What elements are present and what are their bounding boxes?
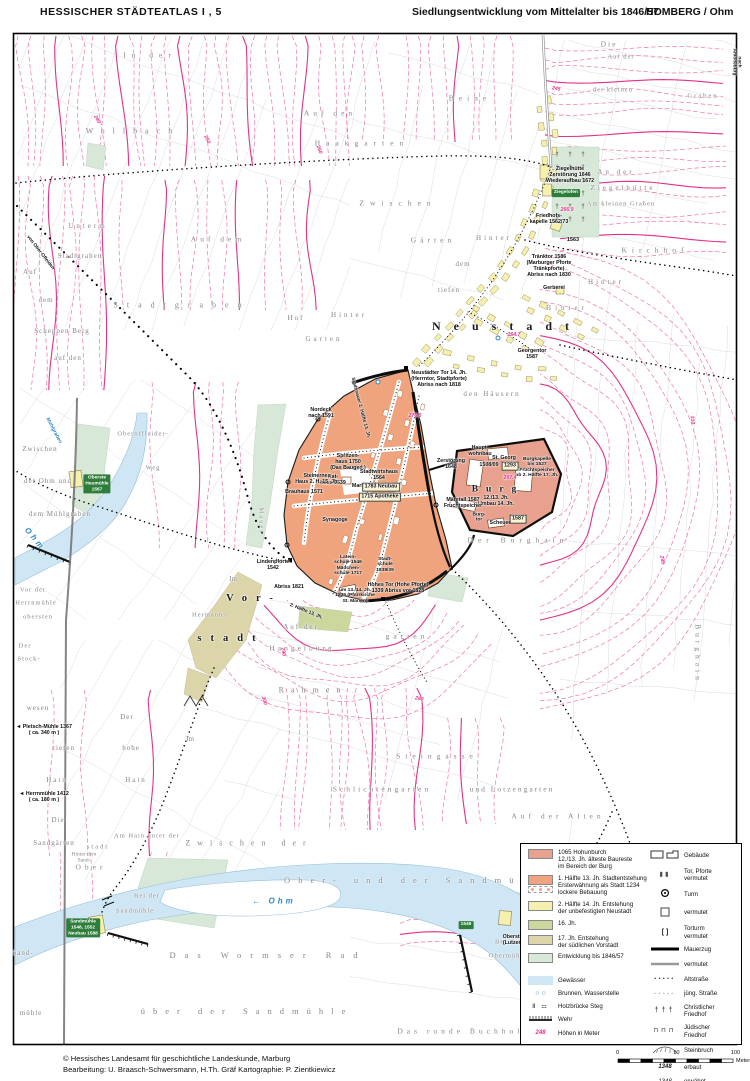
map-label: Das Wormser Rad [170,951,367,961]
map-label: Zerstörung 1648 [437,459,465,471]
map-label: Georgentor 1587 [518,349,547,361]
map-label: 280 [414,696,424,703]
map-label: Sand- [12,949,33,957]
map-label: Die [51,816,64,824]
map-label: Mühlgraben [44,417,62,445]
map-label: Friedhofs- kapelle 1562/73 [530,214,569,226]
map-label: dem [455,260,470,268]
map-label: Auf der Alten [511,813,604,822]
map-label: 1587 [510,515,527,524]
legend-area-item: 2. Hälfte 14. Jh. Entstehung der unbefes… [528,901,649,915]
legend-symbol-item: Mauerzug [649,946,738,954]
map-label: Ohm [23,526,48,553]
legend-symbol-item: vermutet [649,961,738,969]
map-label: Stadtgraben [113,300,250,309]
map-label: hohe [122,744,140,752]
map-label: Gärten [411,237,455,246]
map-label: 295 [657,555,664,565]
map-label: St. Georg [492,456,516,462]
legend-symbol-item: vermutet [649,907,738,919]
map-label: den Häusern [463,390,520,398]
map-label: 245 [551,86,561,93]
map-label: Latein- schule 1546 Mädchen- schule 1717 [334,555,362,577]
map-label: obersten [23,613,53,620]
map-label: 290 [278,647,285,657]
map-label: Oberste Heumühle 1567 [83,474,110,493]
legend-symbol-item: 1348erbaut [649,1063,738,1071]
map-label: dem [38,296,53,304]
legend-box: 1065 Hohunburch 12./13. Jh. älteste Baur… [520,843,742,1045]
legend-symbol-item: ▮▮Tor, Pforte vermutet [649,868,738,882]
map-label: Markt [352,484,366,490]
copyright-line: © Hessisches Landesamt für geschichtlich… [63,1053,336,1064]
map-label: Im [186,735,194,743]
footer: © Hessisches Landesamt für geschichtlich… [63,1053,336,1076]
map-label: Die [601,41,618,50]
map-label: Hinter [331,311,367,319]
map-label: wesen [27,704,50,712]
map-label: Hinter dem Sand- [72,852,97,865]
map-label: Burg [472,485,525,496]
map-label: dem Mühlgraben [29,510,91,518]
map-label: 12./13. Jh. Umbau 14. Jh. [478,496,514,508]
map-label: 2. Hälfte 13. Jh. [289,603,323,621]
legend-area-item: 1. Hälfte 13. Jh. Stadtentstehung Erster… [528,875,649,897]
map-label: Am Hain unter der [114,832,180,839]
legend-symbols-column: Gebäude▮▮Tor, Pforte vermutetTurmvermute… [649,849,738,1042]
map-label: 264.7 [508,333,521,339]
map-label: Hohes Tor (Hohe Pforte) 1339 Abriss vor … [368,583,429,595]
map-label: ← Ohm [252,896,295,905]
map-label: 267.4 [504,476,517,482]
map-label: Steinernes Haus 2. H. 15. Jh. [295,474,339,486]
map-label: Stadtwirtshaus 1564 [360,470,398,482]
map-label: 240 [91,115,100,125]
map-label: stadt [197,633,264,645]
map-label: der Ohm und [24,477,72,485]
map-label: Scheuer [490,521,511,527]
legend-symbol-item: Steinbruch [649,1045,738,1057]
map-label: Ziegelhütte [591,184,656,192]
legend-symbol-item: Turm [649,888,738,900]
map-label: Garten [305,335,342,343]
scale-unit: Meter [736,1058,750,1064]
credits-line: Bearbeitung: U. Braasch-Schwersmann, H.T… [63,1064,336,1075]
map-label: Graben [687,92,718,99]
map-label: Hinter [476,234,512,242]
map-label: Kirchhof [621,247,688,256]
map-label: Nordeck nach 1591 [308,408,334,420]
map-label: Weg [146,464,161,471]
map-label: 250 [201,135,210,145]
map-label: Scheppen Berg [34,327,89,335]
map-label: Stadtgraben [58,252,102,260]
map-label: Burgkapelle bis 1527 Fruchtspeicher ab 2… [516,457,559,479]
map-label: Bei der [134,892,160,899]
map-label: Der [120,713,134,721]
map-label: Auf den [304,110,356,119]
map-label: Rat- haus 1539 [320,475,346,487]
map-label: 1293 [502,462,519,471]
map-label: Ober [76,864,107,873]
map-label: Zwischen [22,445,57,453]
map-label: Ziegelofen [552,189,580,197]
map-label: auf den [54,354,82,362]
map-label: Ziegelhütte Zerstörung 1646 Wiederaufbau… [546,167,594,185]
map-label: 1715 Apotheke [359,493,401,502]
map-label: Stadt- schule 1838/39 [376,557,394,573]
map-label: Das runde Buchholz [397,1028,530,1037]
map-label: Sandmühle 1548, 1552 Neubau 1588 [66,918,100,937]
map-label: Haupt- wohnbau [468,446,491,458]
map-label: Wollbach [86,126,180,135]
map-label: Oberoffleider- [117,430,168,437]
map-label: 276.5 [409,414,422,420]
map-label: Neustädter Tor 14. Jh. (Herrntor, Stadtp… [411,371,467,389]
map-label: Haakgarten [315,140,410,149]
legend-symbol-item: ⊓⊓⊓Jüdischer Friedhof [649,1024,738,1038]
map-label: Vor- [226,593,282,605]
map-label: garten [386,633,429,642]
map-label: 1549 [459,921,474,929]
map-label: über der Sandmühle [141,1007,353,1017]
map-label: Tränktor 1586 (Marburger Pforte Tränkpfo… [527,255,572,279]
map-label: Marstall 1587 Fruchtspeicher [444,498,482,510]
map-label: Rahmen [279,685,348,694]
map-label: Auf der [607,53,634,60]
atlas-sheet: HESSISCHER STÄDTEATLAS I , 5 Siedlungsen… [0,0,750,1081]
scale-label: 0 [616,1050,619,1056]
map-label: Burghain [693,624,702,684]
map-label: Unterm [68,222,107,230]
legend-water-item: Wehr [528,1015,649,1025]
map-label: Zwischen [359,200,436,209]
legend-symbol-item: •••••Altstraße [649,975,738,983]
legend-symbol-item: [ ]Torturm vermutet [649,925,738,939]
legend-symbol-item: †††Christlicher Friedhof [649,1004,738,1018]
map-label: 260 [314,145,323,155]
map-label: 1563 [567,237,579,243]
map-label: ◄ Pletsch-Mühle 1367 ( ca. 340 m ) [16,725,72,737]
legend-water-item: Ⅱ ⚏Holzbrücke Steg [528,1003,649,1011]
map-label: Hof [288,314,305,322]
map-label: Stadtmauer 2. Hälfte 13. Jh. [349,377,370,439]
map-label: von Ober-Ofleiden [25,235,55,271]
map-label: An der [597,168,634,176]
map-label: Im [229,575,237,583]
map-label: 1783 Neubau [362,483,400,492]
map-label: Stock- [18,655,41,662]
map-label: Mauer [257,508,264,535]
map-label: der kleinen [593,86,633,93]
map-label: um 13./14. Jh. 1239 (Pfarrkirche St. Mar… [335,588,375,604]
map-label: Herrnmühle [15,599,56,606]
legend-water-item: Gewässer [528,976,649,985]
legend-symbol-item: ◦◦◦◦◦jüng. Straße [649,990,738,998]
map-label: Hinter [546,304,588,312]
map-label: Beine [449,95,492,104]
map-label: Sandgärten [33,839,75,847]
map-label: 300 [259,696,267,706]
map-label: Hermanns- [192,611,230,618]
map-label: Auf [23,268,37,276]
legend-area-item: 17. Jh. Entstehung der südlichen Vorstad… [528,935,649,949]
map-label: mühle [20,1009,43,1017]
map-label: Gerberei [543,286,565,292]
map-label: Hain [46,776,68,784]
map-label: Burg- tor [472,513,485,524]
map-label: Auf dem [191,236,245,245]
map-label: ◄ Herrnmühle 1412 ( ca. 180 m ) [19,792,69,804]
map-label: tiefen [438,286,460,294]
map-label: 310 [688,415,695,424]
map-label: Der Burghain [468,537,569,546]
map-label: Auf der [283,623,319,631]
map-label: Der [19,642,32,649]
map-label: Hain [125,776,147,784]
map-label: Bei der [495,938,521,945]
map-label: Steingasse [396,753,478,762]
legend-area-item: 1065 Hohunburch 12./13. Jh. älteste Baur… [528,849,649,871]
map-label: Lindenpforte 1542 [257,560,289,572]
map-label: Hangelburg [269,645,334,654]
legend-area-item: Entwicklung bis 1846/57 [528,953,649,963]
map-label: 1508/09 [479,463,498,469]
map-label: In der [123,52,177,61]
map-label: Schlichtengarten [333,786,431,795]
map-label: tiefen [53,744,75,752]
map-label: Ober- und der Sandmühle [284,876,556,886]
legend-areas-column: 1065 Hohunburch 12./13. Jh. älteste Baur… [528,849,649,1042]
map-label: stadt [87,843,109,850]
map-label: Am kleinen Graben [587,200,655,207]
map-label: Sandmühle [116,907,154,914]
legend-symbol-item: Gebäude [649,849,738,861]
legend-area-item: 16. Jh. [528,920,649,930]
map-label: Abriss 1821 [274,585,304,591]
map-label: Spritzen- haus 1750 (Das Bauged.) [330,454,366,472]
map-label: Zwischen der [185,838,312,847]
map-label: Hinter [588,278,624,286]
map-label: Brauhaus 1571 [285,490,323,496]
map-label: nach Amöneburg [731,49,742,76]
map-label: Neustadt [432,320,582,334]
legend-water-item: ○ ○Brunnen, Wasserstelle [528,990,649,998]
map-label: 266.9 [561,208,574,214]
legend-water-item: 248Höhen in Meter [528,1029,649,1037]
map-label: Synagoge [322,518,347,524]
map-label: und Lotzengarten [470,786,555,795]
map-label: Vor der [20,586,46,593]
